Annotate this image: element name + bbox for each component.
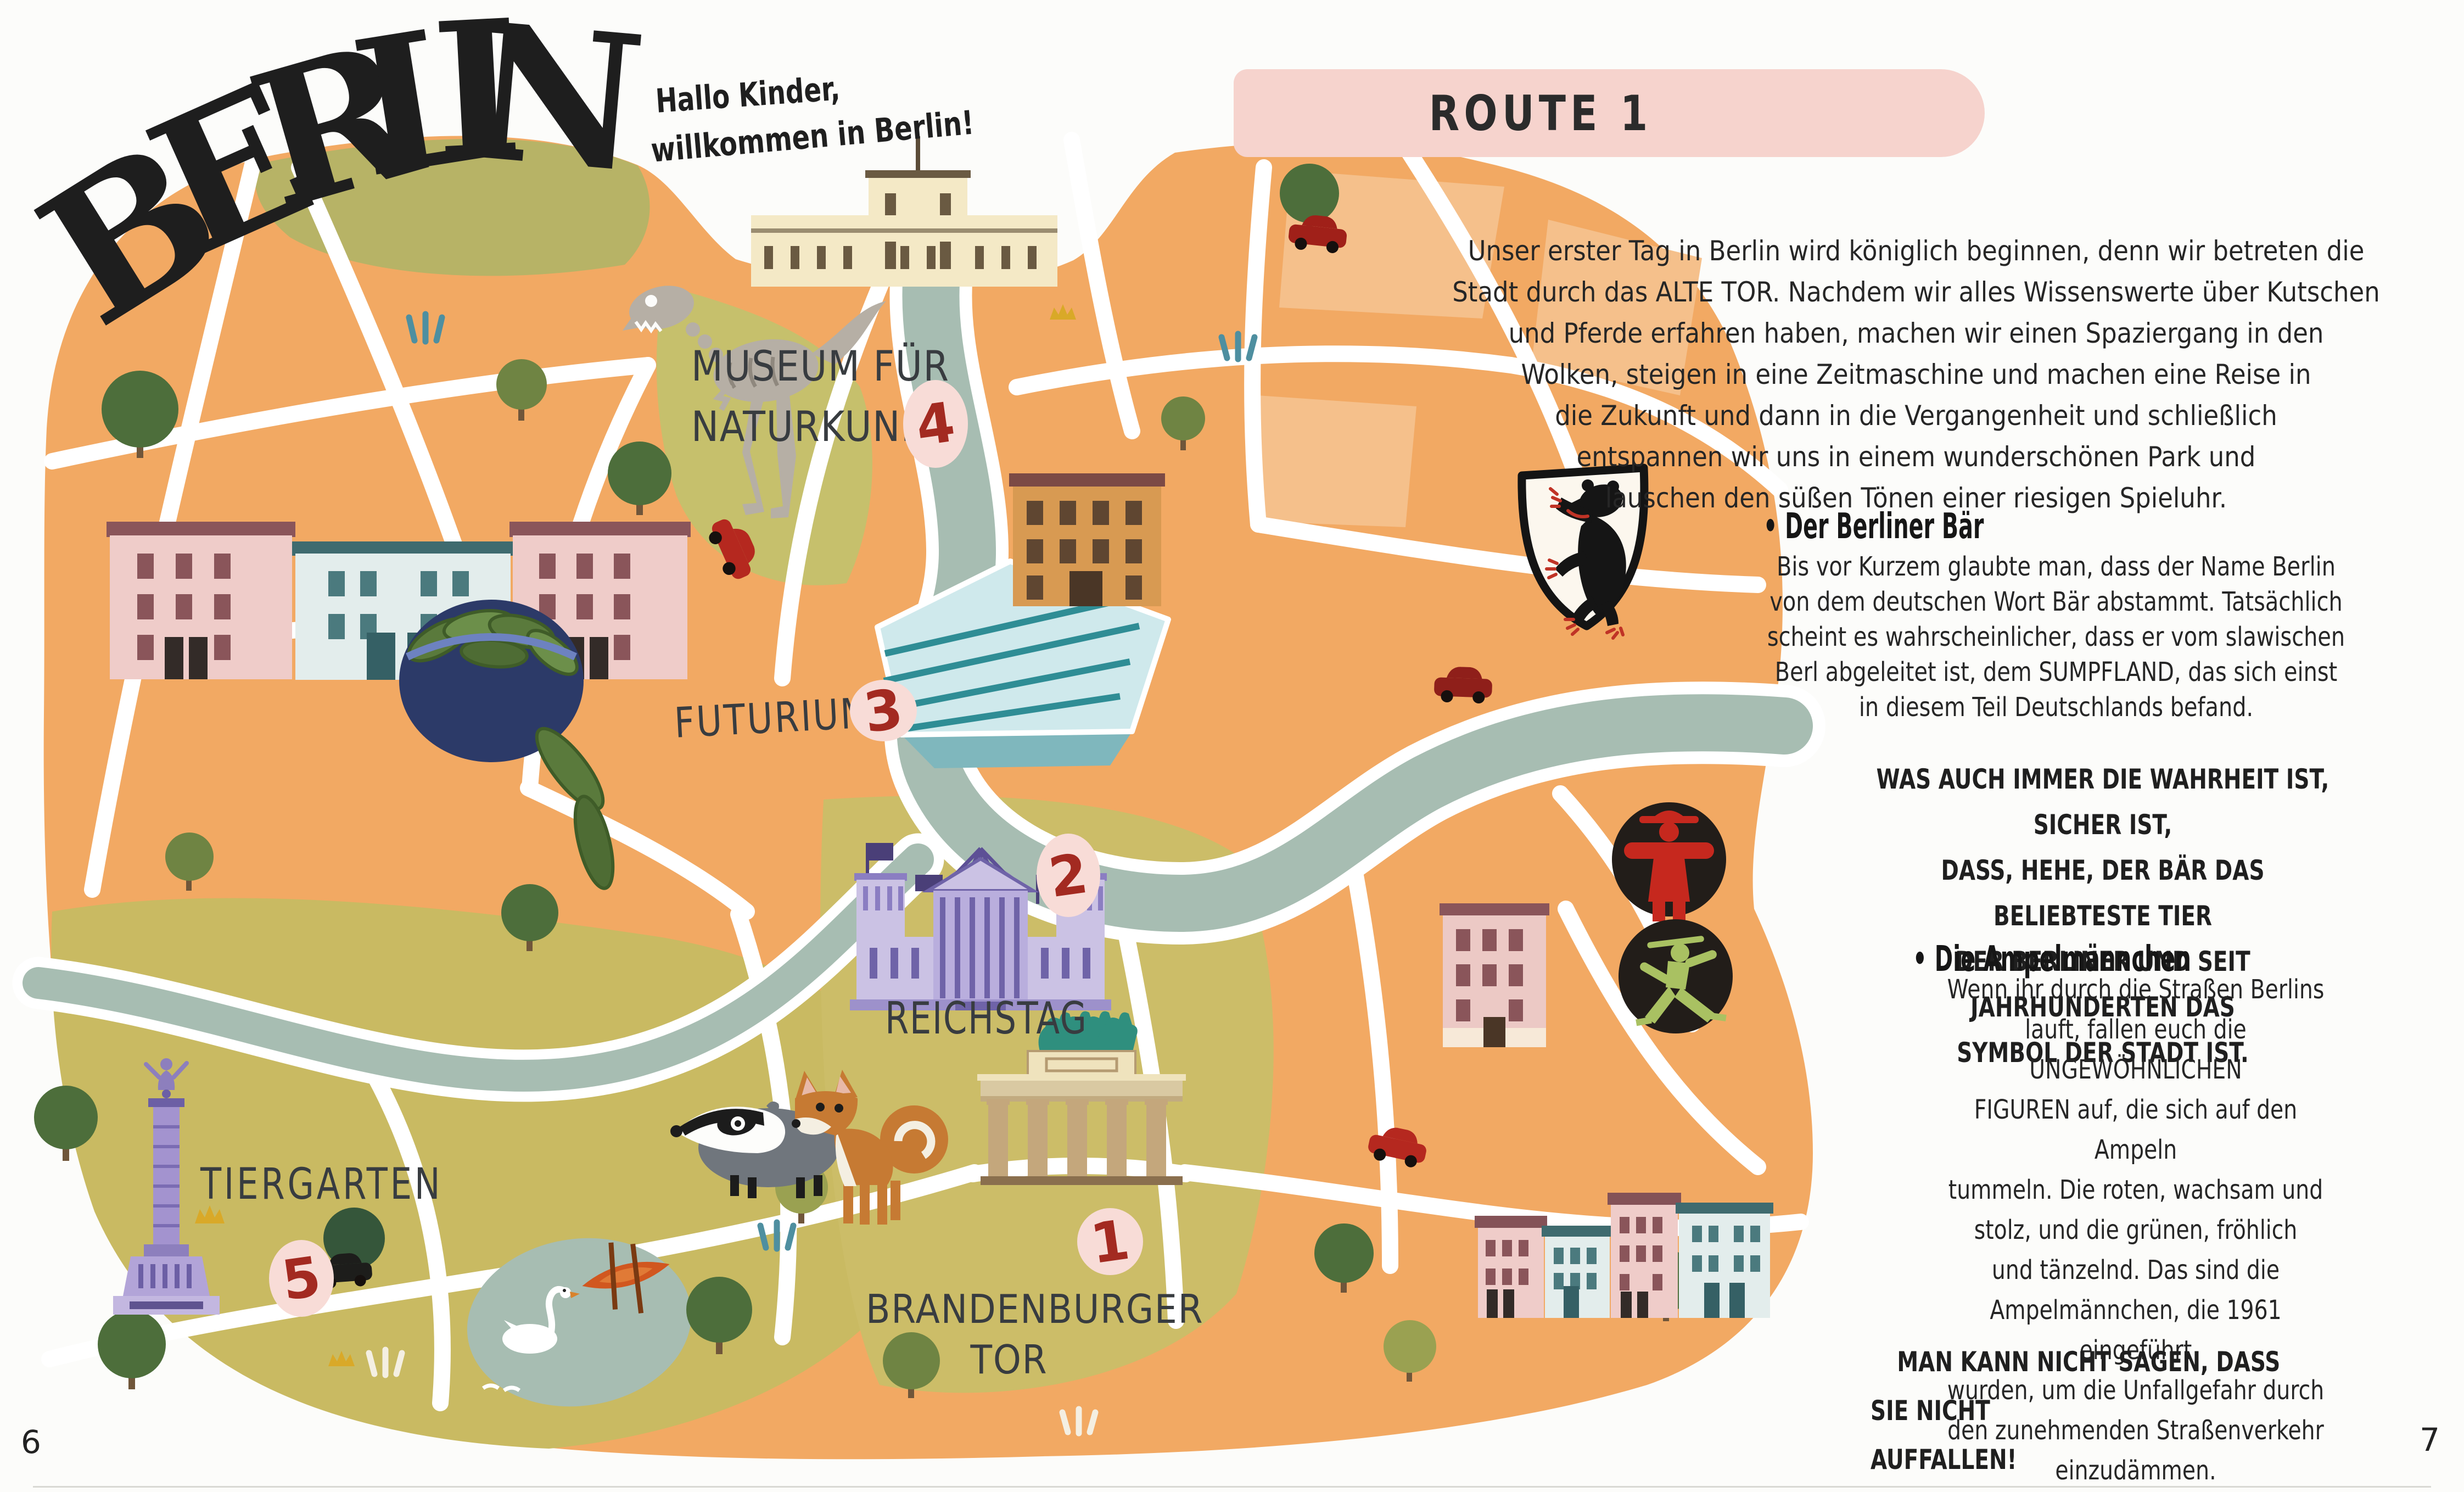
page-bottom-edge — [33, 1486, 2431, 1488]
map-label-futurium: FUTURIUM — [673, 688, 873, 747]
brown-building — [1009, 473, 1165, 606]
poi-number: 5 — [278, 1244, 324, 1313]
row-houses-top-left — [107, 522, 691, 680]
poi-marker-futurium: 3 — [850, 680, 917, 741]
map-label-tiergarten: TIERGARTEN — [200, 1160, 443, 1209]
poi-marker-museum: 4 — [903, 380, 968, 468]
page-title: B E R L I N — [52, 0, 684, 395]
page-number-left: 6 — [21, 1423, 41, 1461]
route-header-banner: ROUTE 1 — [1234, 69, 1985, 157]
poi-number: 2 — [1045, 841, 1091, 910]
poi-marker-brandenburger-tor: 1 — [1077, 1208, 1143, 1275]
map-label-reichstag: REICHSTAG — [885, 993, 1088, 1044]
route-intro-paragraph: Unser erster Tag in Berlin wird königlic… — [1402, 231, 2430, 519]
book-spread: B E R L I N Hallo Kinder, willkommen in … — [0, 0, 2464, 1492]
poi-marker-reichstag: 2 — [1037, 834, 1100, 917]
ampelmaennchen-section-callout: MAN KANN NICHT SAGEN, DASS SIE NICHT AUF… — [1871, 1338, 2325, 1484]
page-number-right: 7 — [2420, 1421, 2440, 1459]
route-header-label: ROUTE 1 — [1429, 85, 1653, 142]
poi-number: 3 — [860, 676, 906, 745]
poi-number: 1 — [1087, 1207, 1133, 1276]
map-label-brandenburger-tor: BRANDENBURGER TOR — [866, 1284, 1152, 1385]
title-letter: N — [464, 0, 651, 199]
ampelmann-green-icon — [1619, 919, 1733, 1033]
bear-section-body: Bis vor Kurzem glaubte man, dass der Nam… — [1762, 549, 2350, 725]
natural-history-museum-building — [751, 136, 1057, 287]
pink-building — [1440, 903, 1549, 1047]
poi-marker-tiergarten: 5 — [269, 1240, 334, 1317]
poi-number: 4 — [912, 389, 959, 459]
bear-section-heading: • Der Berliner Bär — [1763, 506, 1984, 547]
